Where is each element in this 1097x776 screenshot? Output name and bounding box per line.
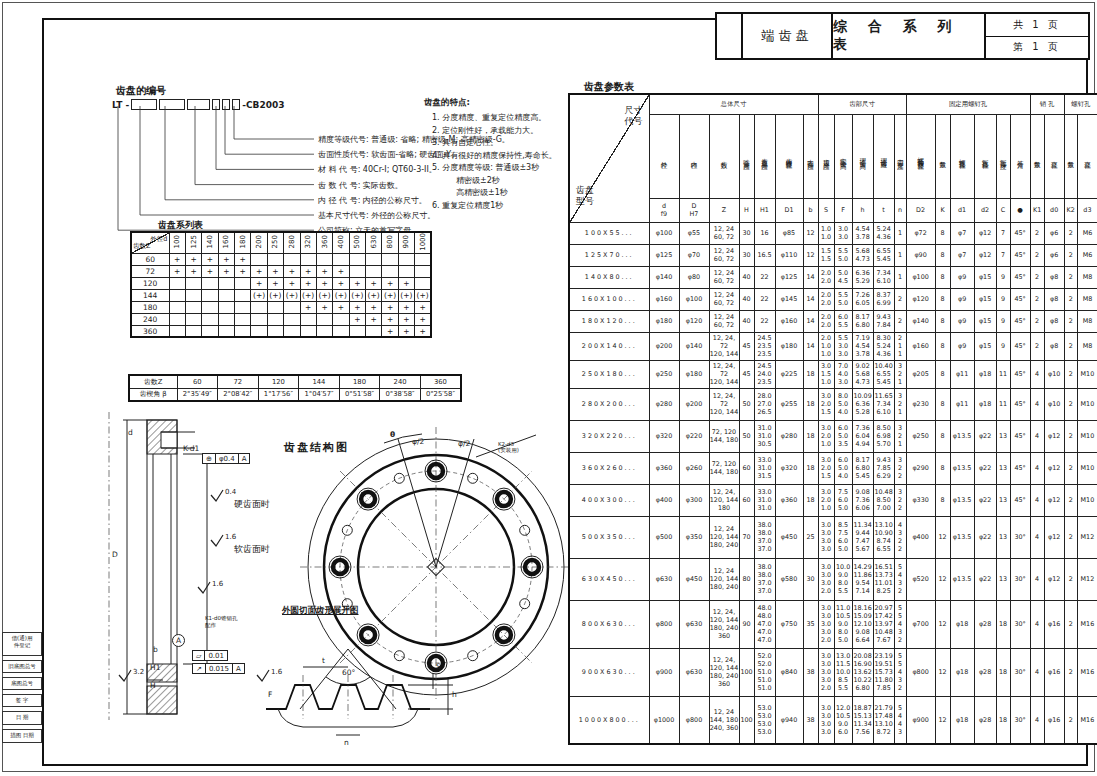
- dim-h1-label: H1: [150, 663, 160, 672]
- param-value-cell: φ700: [906, 600, 935, 648]
- series-mark-cell: +: [366, 313, 382, 325]
- param-value-cell: φ160: [906, 332, 935, 360]
- param-column-name-text: 啮合高度: [742, 154, 750, 158]
- param-value-cell: φ800: [906, 648, 935, 696]
- param-value-cell: 7: [996, 222, 1010, 244]
- param-value-cell: 12, 24 60, 72: [709, 288, 739, 310]
- series-mark-cell: +: [202, 253, 218, 265]
- param-value-cell: 4: [1030, 648, 1044, 696]
- param-value-cell: 12: [803, 244, 818, 266]
- roughness-hard: 0.4: [210, 488, 236, 502]
- param-model-cell: 320X220...: [569, 420, 649, 452]
- leader-line: [225, 106, 314, 154]
- param-value-cell: 72, 120 144, 180: [709, 420, 739, 452]
- series-column-value: 140: [206, 235, 214, 248]
- param-value-cell: 12, 24 60, 72: [709, 244, 739, 266]
- param-value-cell: 1: [894, 266, 906, 288]
- param-value-cell: φ9: [950, 310, 974, 332]
- series-mark-cell: [382, 253, 398, 265]
- param-column-symbol: d f9: [649, 198, 679, 222]
- param-value-cell: M12: [1077, 516, 1097, 558]
- page-info: 共 1 页 第 1 页: [986, 14, 1088, 58]
- param-value-cell: 2: [1030, 266, 1044, 288]
- param-value-cell: 5 5 4 3 2: [894, 648, 906, 696]
- param-column-name: 齿盘总高度: [754, 114, 775, 198]
- param-model-cell: 160X100...: [569, 288, 649, 310]
- param-group-header: 固定用螺钉孔: [906, 94, 1030, 114]
- param-row: 250X180...φ250φ18012, 24, 72 120, 144452…: [569, 360, 1097, 388]
- runout-icon: ↗: [193, 664, 206, 673]
- series-mark-cell: [169, 289, 185, 301]
- param-value-cell: 14: [803, 310, 818, 332]
- param-value-cell: φ225: [775, 360, 803, 388]
- position-tolerance-frame: ⊕ φ0.4 A: [202, 453, 250, 464]
- param-value-cell: φ280: [649, 388, 679, 420]
- param-value-cell: 11: [996, 388, 1010, 420]
- param-value-cell: 1.0 1.0: [818, 222, 834, 244]
- param-value-cell: 12, 24, 72 120, 144: [709, 388, 739, 420]
- param-value-cell: 4.54 3.78: [852, 222, 873, 244]
- param-value-cell: 4: [1030, 558, 1044, 600]
- series-z-label: 120: [131, 277, 169, 289]
- param-value-cell: 2: [1064, 244, 1077, 266]
- series-mark-cell: (+): [300, 289, 316, 301]
- series-row: 120++++++++++: [131, 277, 431, 289]
- param-value-cell: φ580: [775, 558, 803, 600]
- param-column-name-text: 实际全齿高: [839, 153, 847, 158]
- param-value-cell: 12, 24 144, 180 240, 360: [709, 696, 739, 744]
- param-value-cell: φ500: [649, 516, 679, 558]
- position-datum: A: [239, 454, 250, 463]
- param-value-cell: φ450: [679, 558, 709, 600]
- series-mark-cell: [316, 325, 332, 337]
- param-column-name-text: 直径: [1050, 156, 1058, 158]
- param-value-cell: 12, 24, 72 120, 144: [709, 332, 739, 360]
- leader-line: [165, 106, 314, 200]
- mounting-hole-callout: K2-d3 (安装用): [498, 441, 519, 454]
- param-column-name-text: 内径: [690, 156, 698, 158]
- param-value-cell: 12, 24, 120, 144 180, 240 360: [709, 600, 739, 648]
- param-value-cell: 1: [894, 222, 906, 244]
- param-value-cell: 6.36 5.29: [852, 266, 873, 288]
- series-mark-cell: [366, 253, 382, 265]
- param-column-name-text: 等分角: [1016, 155, 1024, 158]
- series-mark-cell: [169, 325, 185, 337]
- margin-boxes: 借(通)用 件登记旧底图总号底图总号签 字日 期描图 日期: [2, 632, 42, 747]
- param-value-cell: 8: [935, 266, 950, 288]
- series-mark-cell: +: [398, 301, 414, 313]
- param-value-cell: 12: [935, 558, 950, 600]
- series-mark-cell: [185, 301, 201, 313]
- param-value-cell: φ11: [950, 360, 974, 388]
- angle-beta-value: 2°35′49″: [177, 388, 218, 401]
- param-value-cell: 40: [739, 288, 754, 310]
- param-value-cell: φ22: [974, 516, 996, 558]
- param-value-cell: φ16: [1044, 648, 1064, 696]
- param-value-cell: 2: [1064, 696, 1077, 744]
- param-value-cell: φ18: [950, 696, 974, 744]
- param-value-cell: 4: [1030, 484, 1044, 516]
- param-value-cell: φ28: [974, 600, 996, 648]
- param-value-cell: 18: [996, 648, 1010, 696]
- param-value-cell: φ800: [679, 696, 709, 744]
- param-value-cell: 6.0 5.0 4.0: [834, 452, 852, 484]
- param-value-cell: 21.79 17.48 13.10 8.72: [873, 696, 894, 744]
- param-row: 200X140...φ200φ14012, 24, 72 120, 144452…: [569, 332, 1097, 360]
- param-value-cell: φ330: [906, 484, 935, 516]
- param-value-cell: M10: [1077, 420, 1097, 452]
- series-mark-cell: (+): [398, 289, 414, 301]
- param-value-cell: 24.5 24.0 23.5: [754, 360, 775, 388]
- series-table: 外径d齿数Z1001251401601802002502803203604005…: [130, 231, 432, 338]
- param-value-cell: 16.51 13.73 11.01 8.25: [873, 558, 894, 600]
- param-value-cell: 12: [935, 600, 950, 648]
- series-row: 360+++: [131, 325, 431, 337]
- param-model-cell: 630X450...: [569, 558, 649, 600]
- param-value-cell: φ8: [1044, 310, 1064, 332]
- param-value-cell: 2.0 2.0: [818, 310, 834, 332]
- param-value-cell: 2: [1064, 222, 1077, 244]
- param-value-cell: 3 2 1: [894, 360, 906, 388]
- series-mark-cell: [202, 289, 218, 301]
- param-model-cell: 800X630...: [569, 600, 649, 648]
- series-column-header: 250: [267, 232, 283, 253]
- param-value-cell: 12, 24 60, 72: [709, 222, 739, 244]
- param-model-cell: 125X70...: [569, 244, 649, 266]
- param-value-cell: φ12: [974, 222, 996, 244]
- series-column-value: 630: [370, 235, 378, 248]
- param-value-cell: φ15: [974, 266, 996, 288]
- param-value-cell: φ80: [679, 266, 709, 288]
- param-column-symbol: d3: [1077, 198, 1097, 222]
- param-column-symbol: H: [739, 198, 754, 222]
- series-mark-cell: [267, 325, 283, 337]
- param-value-cell: 14.29 11.86 9.54 7.14: [852, 558, 873, 600]
- param-value-cell: φ12: [974, 244, 996, 266]
- series-mark-cell: [398, 265, 414, 277]
- param-column-name-text: 齿顶高度: [822, 154, 830, 158]
- param-value-cell: 2.0 2.0: [818, 266, 834, 288]
- dim-s-label: S: [436, 662, 441, 671]
- param-column-name-text: 数量: [1033, 156, 1041, 158]
- series-mark-cell: [251, 301, 267, 313]
- param-value-cell: φ22: [974, 452, 996, 484]
- series-column-value: 400: [337, 235, 345, 248]
- param-column-symbol: F: [834, 198, 852, 222]
- param-corner-top: 尺寸 代号: [625, 105, 643, 128]
- param-value-cell: 8.17 6.80: [852, 310, 873, 332]
- roughness-icon: [118, 669, 132, 682]
- series-mark-cell: +: [235, 253, 251, 265]
- param-value-cell: 22: [754, 266, 775, 288]
- param-value-cell: 2: [1030, 244, 1044, 266]
- param-value-cell: 8: [935, 452, 950, 484]
- param-value-cell: 8: [935, 420, 950, 452]
- param-model-cell: 200X140...: [569, 332, 649, 360]
- param-value-cell: φ12: [1044, 558, 1064, 600]
- param-column-name-text: 螺孔直径: [958, 154, 966, 158]
- param-value-cell: 2: [1064, 266, 1077, 288]
- param-value-cell: 14: [803, 332, 818, 360]
- series-column-header: 1000: [415, 232, 431, 253]
- param-value-cell: M6: [1077, 244, 1097, 266]
- param-model-cell: 360X260...: [569, 452, 649, 484]
- param-column-name-text: 理论齿节距: [880, 153, 888, 158]
- param-value-cell: 30: [803, 558, 818, 600]
- param-column-symbol: n: [894, 198, 906, 222]
- runout-datum: A: [233, 664, 244, 673]
- param-value-cell: 45°: [1010, 288, 1030, 310]
- param-value-cell: 9: [996, 310, 1010, 332]
- param-model-cell: 1000X800...: [569, 696, 649, 744]
- angle-z-value: 360: [420, 375, 461, 388]
- param-value-cell: φ22: [974, 420, 996, 452]
- param-value-cell: 6.55 5.45: [873, 244, 894, 266]
- param-value-cell: 8.0 5.0 4.0: [834, 388, 852, 420]
- series-corner-cell: 外径d齿数Z: [131, 232, 169, 253]
- param-value-cell: 3.0 3.0: [834, 222, 852, 244]
- param-value-cell: φ15: [974, 288, 996, 310]
- param-value-cell: 38.0 38.0 37.0 37.0: [754, 558, 775, 600]
- param-model-cell: 500X350...: [569, 516, 649, 558]
- param-value-cell: 9.08 7.36 6.06: [852, 484, 873, 516]
- param-value-cell: 2.0 2.0: [818, 288, 834, 310]
- series-mark-cell: [333, 313, 349, 325]
- angle-z-value: 144: [299, 375, 340, 388]
- series-z-label: 180: [131, 301, 169, 313]
- param-value-cell: 12, 24, 120, 144 180, 240 360: [709, 648, 739, 696]
- series-mark-cell: [251, 253, 267, 265]
- param-value-cell: 4: [1030, 516, 1044, 558]
- param-column-symbol: S: [818, 198, 834, 222]
- param-value-cell: φ400: [649, 484, 679, 516]
- param-column-name: 齿内缘直径: [775, 114, 803, 198]
- series-mark-cell: +: [366, 277, 382, 289]
- series-mark-cell: [251, 313, 267, 325]
- param-column-name: 齿顶高度: [818, 114, 834, 198]
- angle-z-value: 120: [258, 375, 299, 388]
- series-mark-cell: +: [398, 277, 414, 289]
- param-value-cell: 3.0 3.0 3.0 3.0: [818, 696, 834, 744]
- param-value-cell: 18: [803, 388, 818, 420]
- margin-box: 日 期: [2, 711, 42, 724]
- pin-hole-note: K1-d0锥销孔 配作: [205, 615, 238, 629]
- param-value-cell: 12.0 10.5 9.0 6.0: [834, 696, 852, 744]
- angle-z-row: 齿数Z6072120144180240360: [129, 375, 461, 388]
- param-value-cell: 5.24 4.36: [873, 222, 894, 244]
- param-column-symbol: H1: [754, 198, 775, 222]
- param-value-cell: 11: [996, 360, 1010, 388]
- series-mark-cell: +: [382, 325, 398, 337]
- param-value-cell: 7: [996, 244, 1010, 266]
- param-value-cell: 4: [1030, 388, 1044, 420]
- param-value-cell: 38: [803, 648, 818, 696]
- series-mark-cell: (+): [382, 289, 398, 301]
- param-value-cell: φ290: [906, 452, 935, 484]
- series-mark-cell: +: [218, 253, 234, 265]
- param-value-cell: 2: [1064, 600, 1077, 648]
- param-value-cell: 4: [1030, 360, 1044, 388]
- param-value-cell: φ320: [649, 420, 679, 452]
- series-mark-cell: [349, 253, 365, 265]
- angle-beta-value: 1°17′56″: [258, 388, 299, 401]
- series-mark-cell: +: [300, 277, 316, 289]
- param-value-cell: 7.19 4.54 3.78: [852, 332, 873, 360]
- param-row: 140X80...φ140φ8012, 24 60, 724022φ125142…: [569, 266, 1097, 288]
- param-value-cell: 8: [935, 332, 950, 360]
- param-value-cell: φ630: [679, 648, 709, 696]
- param-row: 900X630...φ900φ63012, 24, 120, 144 180, …: [569, 648, 1097, 696]
- param-value-cell: φ13.5: [950, 558, 974, 600]
- param-value-cell: 38: [803, 696, 818, 744]
- series-column-header: 200: [251, 232, 267, 253]
- series-mark-cell: (+): [366, 289, 382, 301]
- param-value-cell: φ9: [950, 288, 974, 310]
- param-value-cell: 16: [754, 222, 775, 244]
- param-value-cell: 2: [1064, 484, 1077, 516]
- param-column-name: 数量: [1064, 114, 1077, 198]
- runout-value: 0.015: [206, 664, 233, 673]
- series-mark-cell: [349, 265, 365, 277]
- param-row: 100X55...φ100φ5512, 24 60, 723016φ85121.…: [569, 222, 1097, 244]
- series-column-header: 500: [349, 232, 365, 253]
- param-value-cell: M10: [1077, 360, 1097, 388]
- param-value-cell: φ6: [1044, 244, 1064, 266]
- theta-label: θ: [390, 430, 395, 439]
- param-value-cell: 28.0 27.0 26.5: [754, 388, 775, 420]
- series-column-value: 500: [353, 235, 361, 248]
- series-mark-cell: +: [382, 313, 398, 325]
- param-column-name: 直径: [1077, 114, 1097, 198]
- param-row: 160X100...φ160φ10012, 24 60, 724022φ1451…: [569, 288, 1097, 310]
- param-value-cell: M10: [1077, 452, 1097, 484]
- series-column-value: 200: [255, 235, 263, 248]
- param-value-cell: φ120: [679, 310, 709, 332]
- param-value-cell: 30°: [1010, 516, 1030, 558]
- param-value-cell: 30°: [1010, 648, 1030, 696]
- param-value-cell: 13: [996, 484, 1010, 516]
- param-value-cell: 3.0 3.0 3.0 3.0: [818, 516, 834, 558]
- series-mark-cell: [284, 301, 300, 313]
- param-value-cell: φ100: [906, 266, 935, 288]
- param-value-cell: 9.02 5.68 4.73: [852, 360, 873, 388]
- series-mark-cell: (+): [251, 289, 267, 301]
- param-value-cell: φ180: [649, 310, 679, 332]
- param-value-cell: φ140: [649, 266, 679, 288]
- param-column-name-text: 数量: [939, 156, 947, 158]
- series-row: 240+++++: [131, 313, 431, 325]
- series-mark-cell: +: [300, 265, 316, 277]
- series-header-row: 外径d齿数Z1001251401601802002502803203604005…: [131, 232, 431, 253]
- param-column-symbol: D H7: [679, 198, 709, 222]
- series-mark-cell: [218, 313, 234, 325]
- series-mark-cell: +: [415, 301, 431, 313]
- param-value-cell: 8: [935, 360, 950, 388]
- series-mark-cell: [218, 325, 234, 337]
- param-value-cell: 10.40 6.55 5.45: [873, 360, 894, 388]
- param-column-name-text: 齿内缘直径: [785, 153, 793, 158]
- param-value-cell: φ840: [775, 648, 803, 696]
- series-row: 60+++++: [131, 253, 431, 265]
- param-value-cell: φ7: [950, 244, 974, 266]
- series-mark-cell: [398, 253, 414, 265]
- param-value-cell: 45°: [1010, 222, 1030, 244]
- param-value-cell: 11.0 10.5 9.0 8.0 5.0: [834, 600, 852, 648]
- position-value: φ0.4: [216, 454, 239, 463]
- param-value-cell: 5 4 4 3: [894, 696, 906, 744]
- dim-d2-label: d: [128, 428, 133, 437]
- param-value-cell: 33.0 31.0 31.0: [754, 484, 775, 516]
- series-mark-cell: [333, 325, 349, 337]
- param-corner-bottom: 齿盘 型号: [576, 185, 594, 208]
- param-model-cell: 280X200...: [569, 388, 649, 420]
- series-mark-cell: [251, 325, 267, 337]
- param-value-cell: 3.0 2.0 1.5: [818, 388, 834, 420]
- param-value-cell: 12, 24, 120, 144 180: [709, 484, 739, 516]
- roughness-icon: [210, 489, 224, 502]
- series-column-header: 630: [366, 232, 382, 253]
- param-value-cell: 13: [996, 420, 1010, 452]
- param-value-cell: 4: [1030, 420, 1044, 452]
- series-mark-cell: (+): [267, 289, 283, 301]
- param-row: 360X260...φ360φ26072, 120 144, 1806033.0…: [569, 452, 1097, 484]
- param-value-cell: φ125: [775, 266, 803, 288]
- param-value-cell: φ22: [974, 484, 996, 516]
- param-column-name-text: 空刀宽度: [896, 154, 904, 158]
- dim-d-label: D: [112, 550, 118, 559]
- angle-z-value: 72: [218, 375, 259, 388]
- param-value-cell: 8.37 6.99: [873, 288, 894, 310]
- param-value-cell: 90: [739, 600, 754, 648]
- param-value-cell: φ18: [950, 600, 974, 648]
- roughness-mid: 1.6: [197, 580, 223, 594]
- datum-a: A: [172, 634, 185, 647]
- angle-beta-value: 0°25′58″: [420, 388, 461, 401]
- param-value-cell: φ250: [906, 420, 935, 452]
- param-value-cell: φ360: [775, 484, 803, 516]
- param-value-cell: 45°: [1010, 420, 1030, 452]
- param-value-cell: 20.97 17.42 13.97 10.48 7.67: [873, 600, 894, 648]
- series-column-header: 280: [284, 232, 300, 253]
- param-value-cell: 11.65 7.34 6.10: [873, 388, 894, 420]
- dim-f-label: F: [268, 690, 272, 699]
- param-value-cell: φ8: [1044, 266, 1064, 288]
- param-value-cell: M8: [1077, 310, 1097, 332]
- param-value-cell: φ18: [974, 388, 996, 420]
- param-column-name: 数量: [1030, 114, 1044, 198]
- series-mark-cell: [333, 253, 349, 265]
- param-column-name: 实际全齿高: [834, 114, 852, 198]
- series-column-header: 160: [218, 232, 234, 253]
- param-model-cell: 400X300...: [569, 484, 649, 516]
- param-column-name-text: 螺孔分布圆直径: [917, 152, 925, 159]
- param-column-symbol: t: [873, 198, 894, 222]
- param-value-cell: φ9: [950, 266, 974, 288]
- param-value-cell: 3.0 1.5 1.0: [818, 360, 834, 388]
- phi-half-right: φ/2: [458, 439, 470, 448]
- title-block-spacer: [717, 14, 743, 58]
- series-column-header: 180: [235, 232, 251, 253]
- param-value-cell: 18.87 15.13 11.34 7.56: [852, 696, 873, 744]
- param-value-cell: φ320: [775, 452, 803, 484]
- param-column-name: 理论全齿高: [852, 114, 873, 198]
- param-value-cell: φ450: [775, 516, 803, 558]
- param-value-cell: φ350: [679, 516, 709, 558]
- param-value-cell: 7.5 6.0 5.0: [834, 484, 852, 516]
- param-column-name-text: 理论全齿高: [859, 153, 867, 158]
- param-value-cell: φ255: [775, 388, 803, 420]
- series-mark-cell: +: [267, 265, 283, 277]
